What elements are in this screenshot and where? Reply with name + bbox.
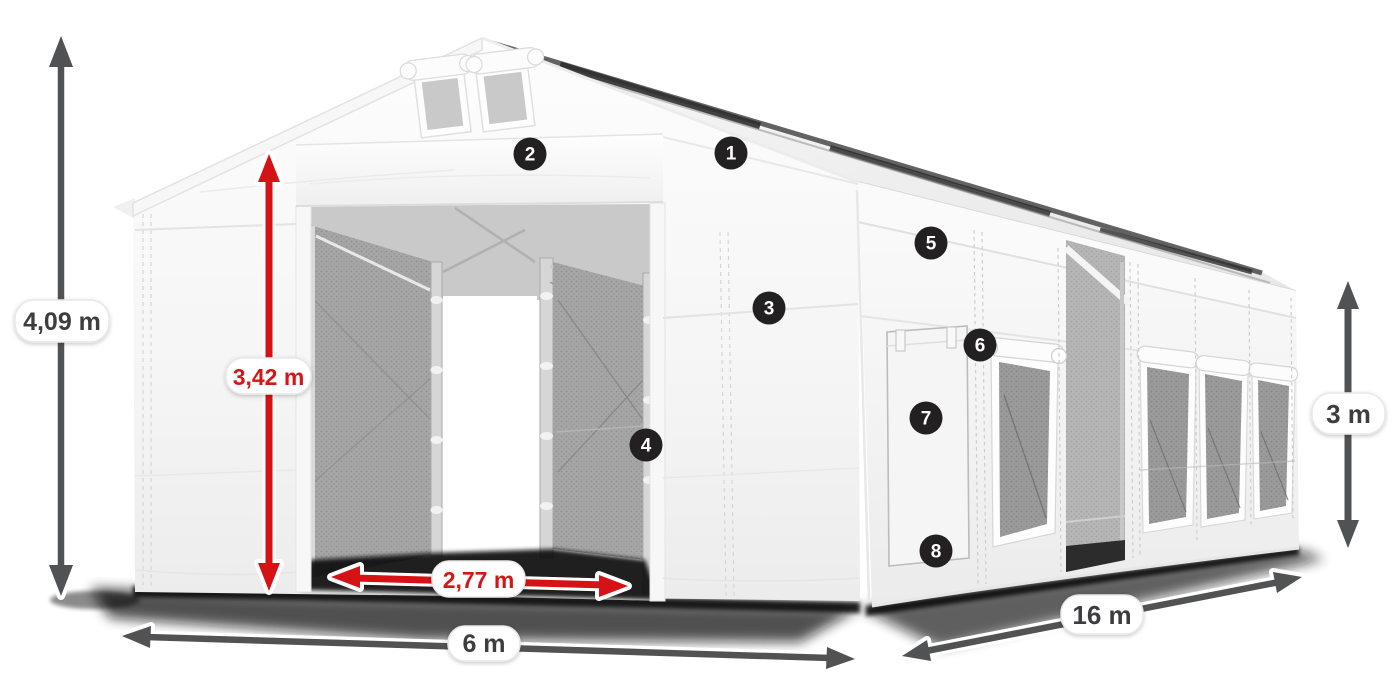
svg-text:2,77 m: 2,77 m [443,567,515,593]
interior-mesh-left [310,225,433,578]
interior-pass-through [443,296,537,556]
dim-width-label: 6 m [448,626,520,661]
svg-text:7: 7 [921,409,932,430]
side-window-3 [1195,355,1251,527]
entrance-opening [296,203,665,601]
svg-text:3 m: 3 m [1326,399,1371,429]
svg-text:8: 8 [931,542,942,563]
diagram-canvas: 4,09 m 3,42 m [0,0,1400,700]
entrance-left-jamb [296,206,311,592]
svg-text:1: 1 [726,144,737,165]
entrance-right-jamb [650,203,665,601]
svg-text:6: 6 [975,336,986,357]
callout-2-entrance-header: 2 [514,138,547,171]
door-zipper-tab [947,327,956,348]
side-window-4 [1248,362,1298,519]
svg-text:4,09 m: 4,09 m [23,308,101,336]
svg-text:5: 5 [926,234,937,255]
side-open-doorway [1066,240,1131,572]
svg-text:3,42 m: 3,42 m [233,364,305,390]
dim-total-height-label: 4,09 m [15,300,109,342]
entrance-header-band [296,134,663,207]
interior-mesh-right [553,262,645,560]
callout-3-front-wall: 3 [753,292,786,325]
side-window-1 [983,337,1067,547]
svg-text:6 m: 6 m [462,630,505,658]
door-zipper-tab [896,330,905,351]
dim-side-height-label: 3 m [1312,393,1385,434]
svg-text:4: 4 [641,436,652,457]
side-door [887,326,969,566]
callout-1-roof: 1 [715,137,748,170]
side-window-2 [1136,345,1199,533]
tent-dimensions-diagram: 4,09 m 3,42 m [0,0,1400,700]
callout-4-entrance-post: 4 [630,429,663,462]
svg-text:16 m: 16 m [1072,600,1131,630]
dim-entrance-height-label: 3,42 m [226,358,311,394]
dim-length-label: 16 m [1061,595,1143,634]
dim-entrance-width-label: 2,77 m [432,561,525,597]
svg-text:3: 3 [764,299,775,320]
svg-text:2: 2 [525,145,536,166]
callout-8-side-door-bottom: 8 [920,535,953,568]
tent-illustration [113,38,1299,606]
callout-7-side-door: 7 [910,402,943,435]
callout-5-side-panel: 5 [915,227,948,260]
callout-6-window: 6 [964,329,997,362]
